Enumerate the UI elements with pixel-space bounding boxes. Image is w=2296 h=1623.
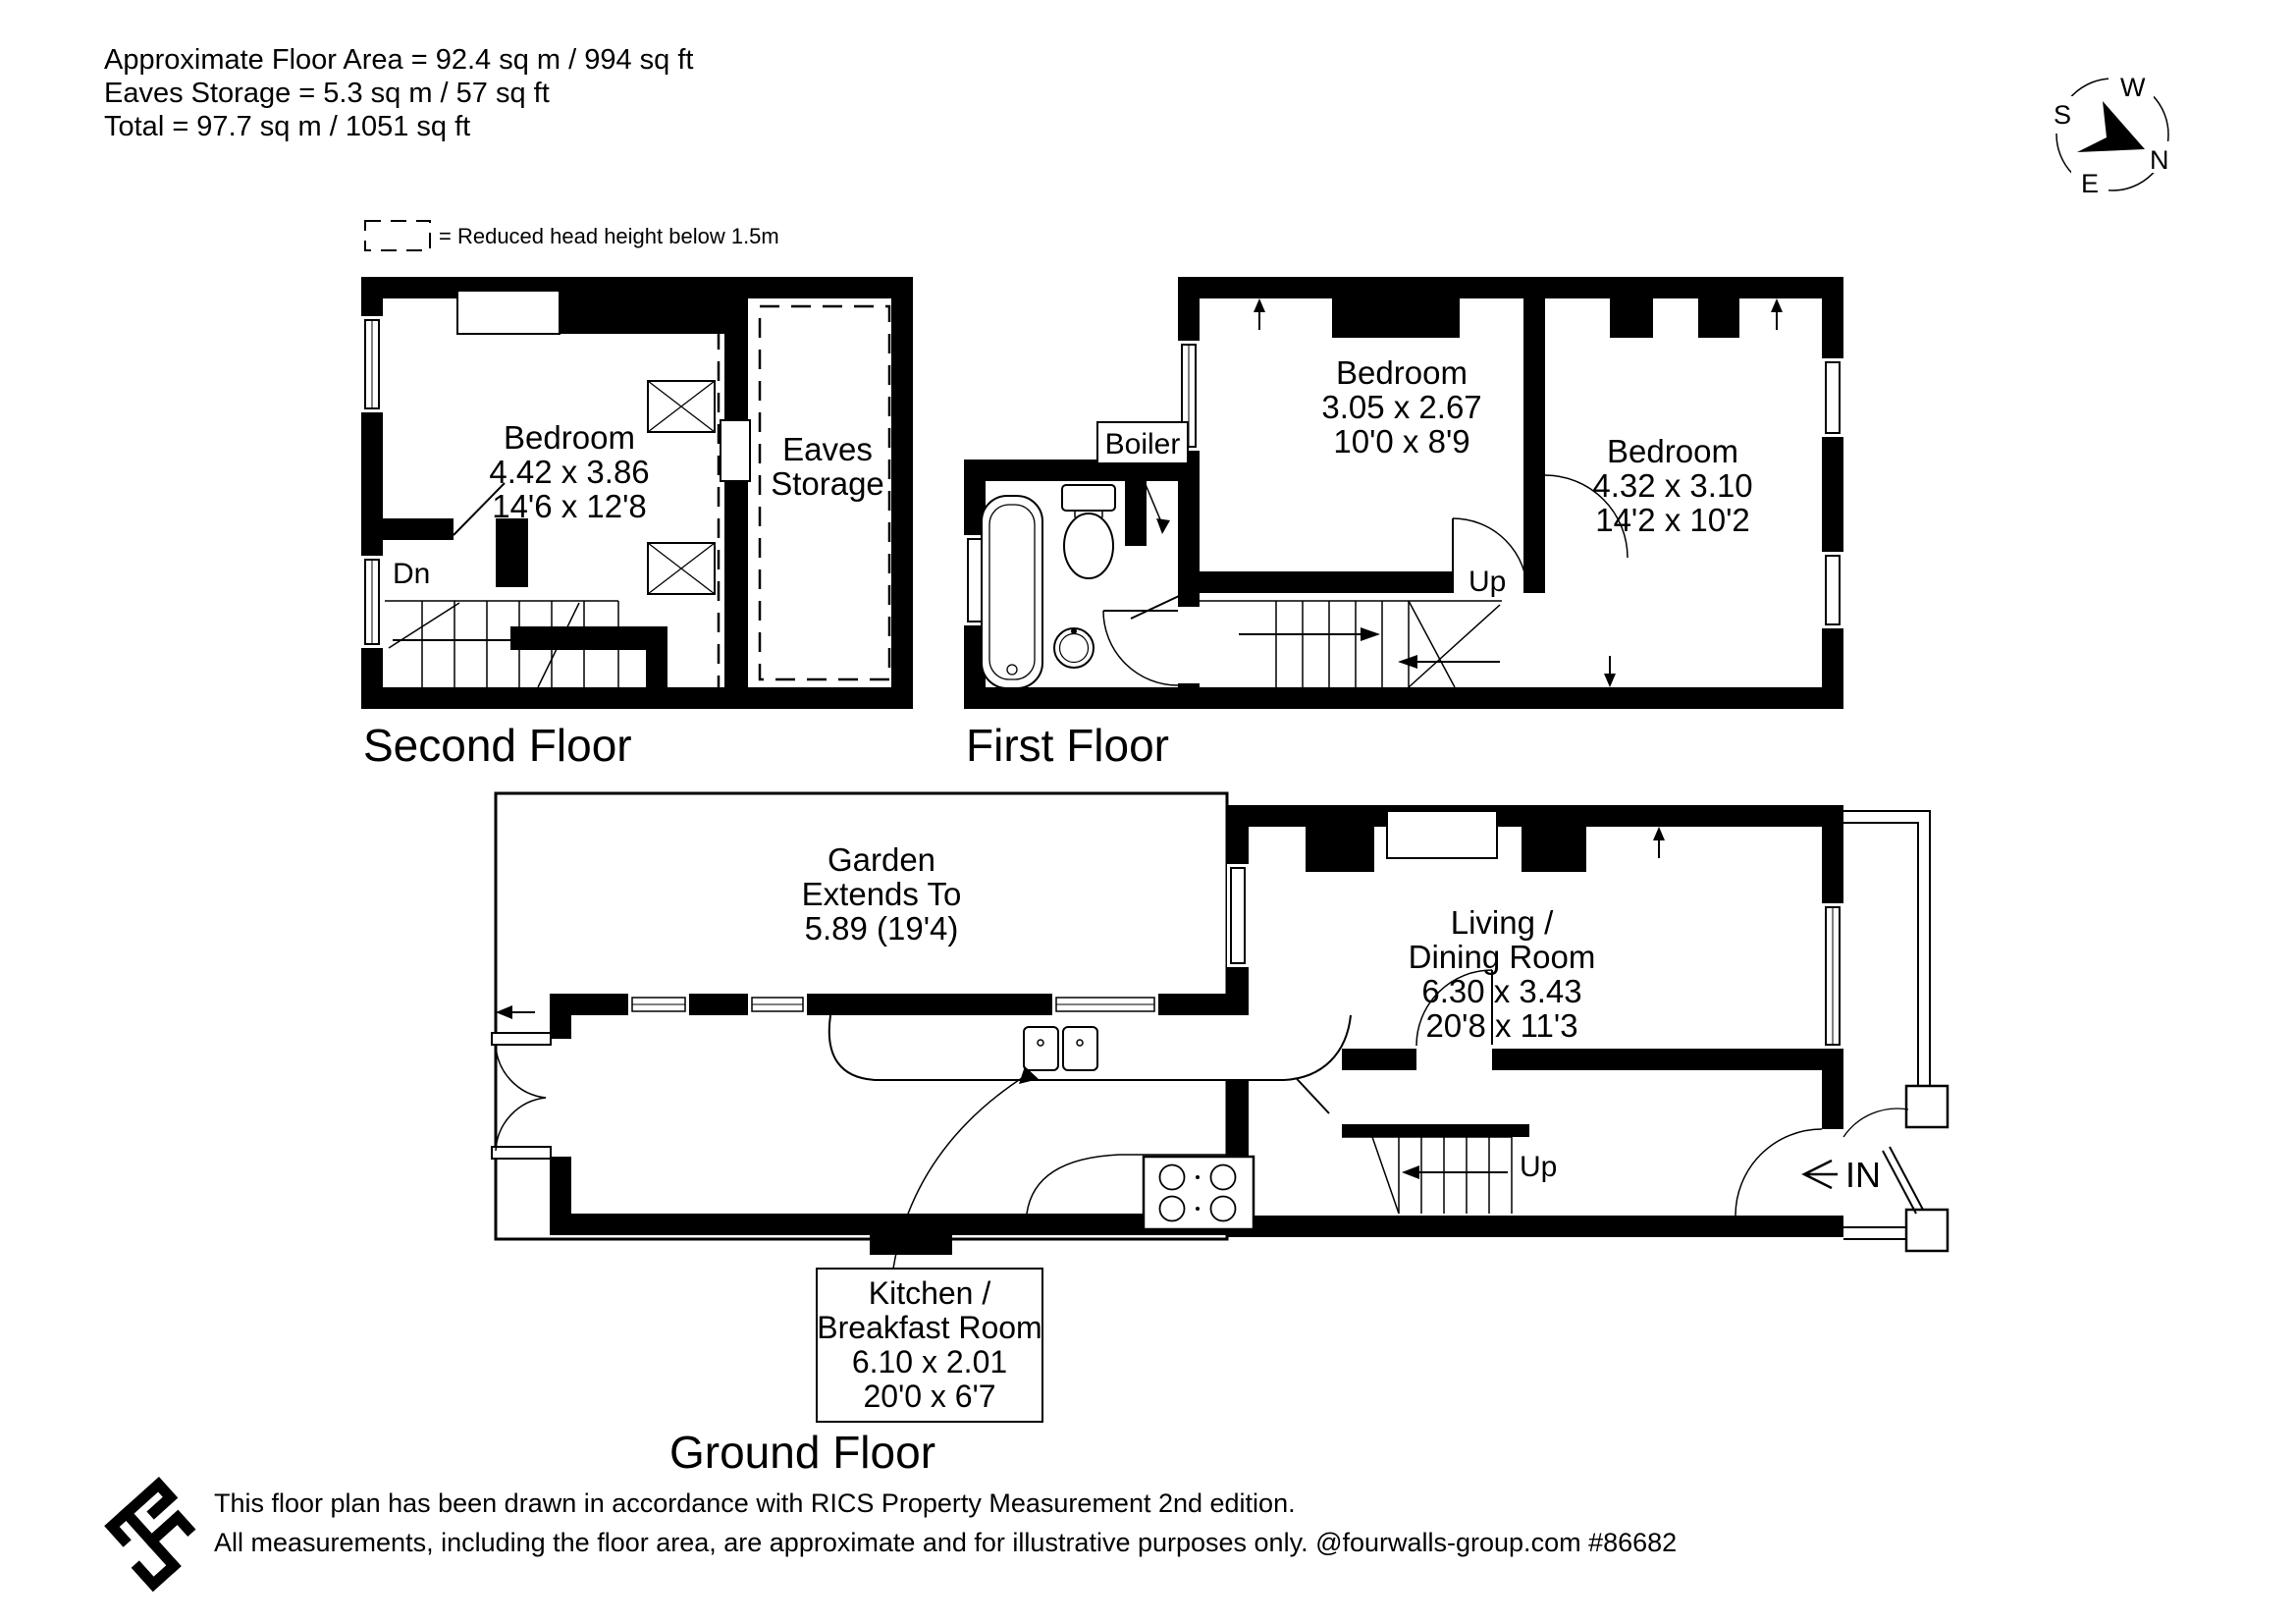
compass-north: N [2150,145,2169,176]
room-label-eaves-storage: Eaves Storage [771,432,884,501]
window-icon [628,994,689,1015]
window-icon [361,556,383,648]
toilet-icon [1062,485,1115,578]
compass-east: E [2081,169,2099,199]
eaves-storage-area: Eaves Storage = 5.3 sq m / 57 sq ft [104,77,693,110]
ground-floor-plan [492,793,1948,1422]
rooflight-icon [648,543,715,594]
bathtub-icon [982,496,1042,688]
window-icon [748,994,807,1015]
stairs-down [385,601,618,687]
compass-west: W [2120,73,2145,103]
window-icon [1052,994,1158,1015]
rooflight-icon [648,381,715,432]
garden-label: Garden Extends To 5.89 (19'4) [802,842,962,946]
floorplan-page: Approximate Floor Area = 92.4 sq m / 994… [0,0,2296,1623]
hob-icon [1144,1157,1254,1229]
window-icon [361,316,383,412]
sink-icon [1054,628,1094,668]
stairs-down-label: Dn [393,558,430,591]
window-icon [1822,903,1843,1049]
second-floor-title: Second Floor [363,719,632,772]
footer-rics-note: This floor plan has been drawn in accord… [214,1488,1296,1519]
area-summary: Approximate Floor Area = 92.4 sq m / 994… [104,43,693,143]
window-icon [1822,552,1843,628]
kitchen-label: Kitchen / Breakfast Room 6.10 x 2.01 20'… [817,1276,1041,1414]
room-label-bedroom-second: Bedroom 4.42 x 3.86 14'6 x 12'8 [489,420,649,523]
kitchen-counter [829,1015,1351,1214]
room-label-bedroom2-first: Bedroom 4.32 x 3.10 14'2 x 10'2 [1592,434,1752,537]
entrance-label: IN [1845,1155,1881,1196]
window-icon [1227,864,1249,967]
floorplan-drawing [0,0,2296,1623]
total-floor-area: Approximate Floor Area = 92.4 sq m / 994… [104,43,693,77]
stairs-up-label-ground: Up [1520,1151,1557,1184]
stairs-up [1200,601,1502,687]
legend-label: = Reduced head height below 1.5m [439,224,779,249]
footer-disclaimer: All measurements, including the floor ar… [214,1528,1677,1558]
stairs-up-label-first: Up [1468,566,1506,599]
total-area: Total = 97.7 sq m / 1051 sq ft [104,110,693,143]
fourwalls-logo-icon [106,1485,206,1585]
french-doors [492,1033,551,1159]
stairs-up [1342,1124,1529,1214]
first-floor-title: First Floor [966,719,1169,772]
ground-floor-title: Ground Floor [669,1426,935,1479]
boiler-label: Boiler [1105,428,1181,461]
room-label-living-dining: Living / Dining Room 6.30 x 3.43 20'8 x … [1409,905,1596,1043]
room-label-bedroom1-first: Bedroom 3.05 x 2.67 10'0 x 8'9 [1321,355,1481,459]
compass-icon [2044,71,2177,196]
compass-south: S [2054,100,2071,131]
window-icon [1822,358,1843,437]
legend-swatch [365,221,430,250]
